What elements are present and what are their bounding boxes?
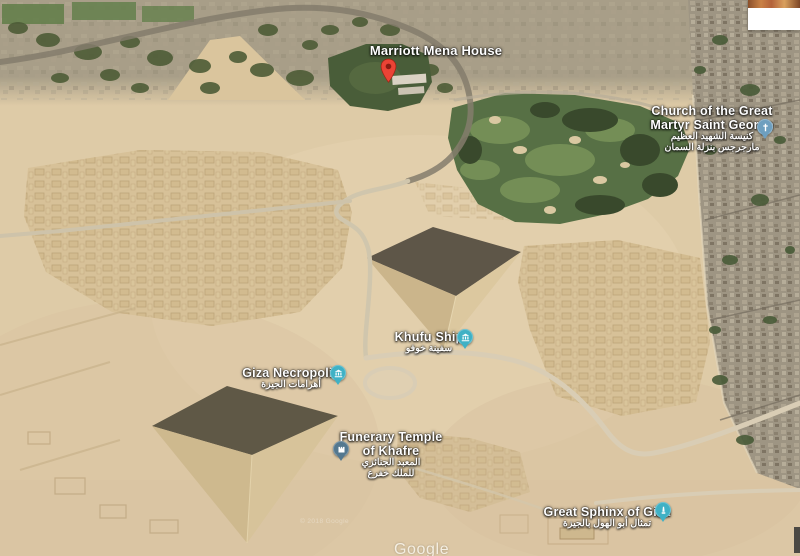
label-text: Khufu Ship	[395, 330, 464, 344]
label-text: Church of the Great	[651, 104, 772, 118]
ruins-poi-icon[interactable]	[333, 441, 349, 457]
label-text: Martyr Saint George	[650, 118, 773, 132]
church-poi-icon[interactable]	[757, 119, 773, 135]
photo-thumbnail	[748, 0, 800, 8]
map-label-khufu-ship[interactable]: Khufu Ship سفينة خوفو	[395, 330, 464, 355]
museum-icon	[334, 369, 343, 378]
map-label-funerary-temple-khafre[interactable]: Funerary Temple of Khafre المعبد الجنائز…	[340, 430, 443, 479]
label-text: of Khafre	[363, 444, 420, 458]
imagery-copyright: © 2018 Google	[300, 518, 349, 525]
label-text-arabic: تمثال أبو الهول بالجيزة	[544, 519, 671, 530]
museum-poi-icon[interactable]	[330, 365, 346, 381]
map-label-giza-necropolis[interactable]: Giza Necropolis أهرامات الجيزة	[242, 366, 339, 391]
label-text-arabic: مارجرجس بنزلة السمان	[650, 143, 773, 154]
satellite-map-canvas[interactable]: Marriott Mena House Church of the Great …	[0, 0, 800, 556]
cross-icon	[761, 123, 770, 132]
label-text: Great Sphinx of Giza	[544, 505, 671, 519]
map-label-great-sphinx[interactable]: Great Sphinx of Giza تمثال أبو الهول بال…	[544, 505, 671, 530]
map-label-marriott-mena-house[interactable]: Marriott Mena House	[370, 44, 502, 59]
label-text-arabic: أهرامات الجيزة	[242, 380, 339, 391]
museum-poi-icon[interactable]	[457, 329, 473, 345]
red-map-pin-icon[interactable]	[380, 58, 397, 84]
google-logo[interactable]: Google	[394, 541, 449, 556]
monument-poi-icon[interactable]	[655, 502, 671, 518]
monument-icon	[659, 506, 668, 515]
label-text-arabic: للملك خفرع	[340, 469, 443, 480]
map-label-church-saint-george[interactable]: Church of the Great Martyr Saint George …	[650, 104, 773, 153]
museum-icon	[461, 333, 470, 342]
label-text-arabic: سفينة خوفو	[395, 344, 464, 355]
label-text: Giza Necropolis	[242, 366, 339, 380]
photo-card-cutoff[interactable]	[748, 0, 800, 30]
cutoff-ui-control	[794, 527, 800, 553]
castle-icon	[337, 445, 346, 454]
label-text: Funerary Temple	[340, 430, 443, 444]
label-text: Marriott Mena House	[370, 43, 502, 58]
